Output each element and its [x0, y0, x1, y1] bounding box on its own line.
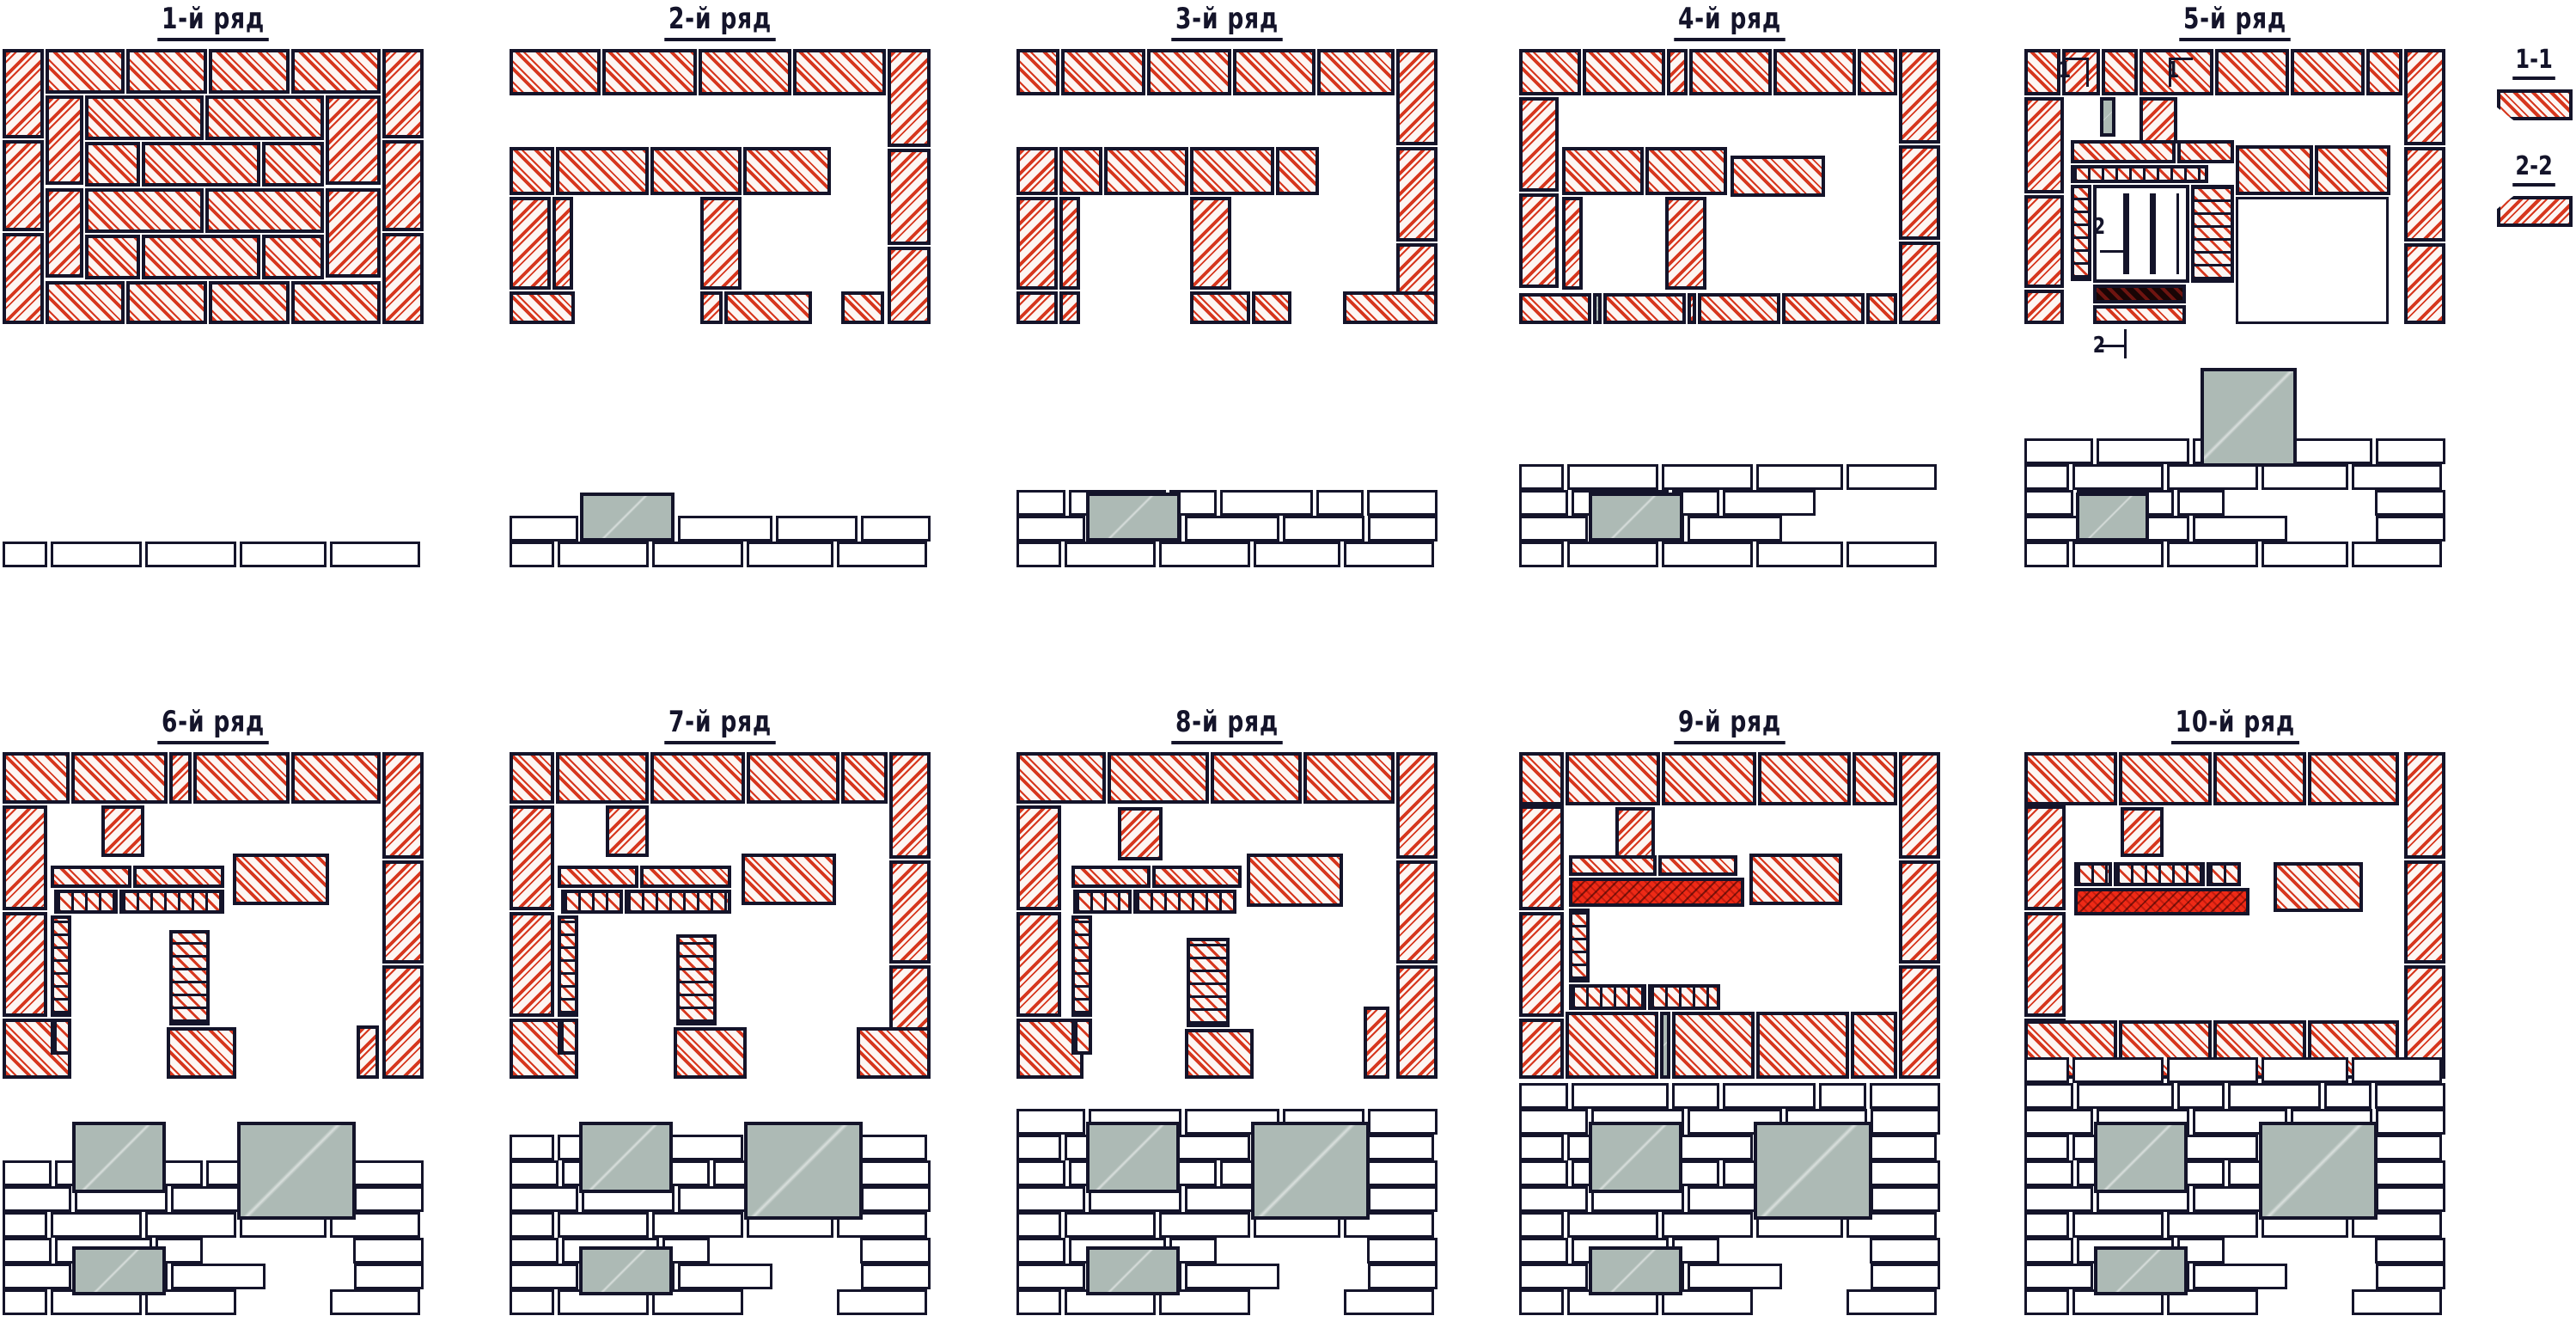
plan-brick — [640, 866, 731, 888]
elevation-brick — [1344, 542, 1434, 567]
plan-brick — [1152, 866, 1242, 888]
plan-brick — [1104, 147, 1188, 195]
plan-brick — [1569, 984, 1646, 1010]
elevation-brick — [2375, 1083, 2445, 1109]
elevation-brick — [2024, 1289, 2069, 1315]
elevation-brick — [861, 1186, 931, 1212]
plan-brick — [126, 281, 207, 324]
elevation-brick — [2193, 516, 2287, 542]
plan-brick — [1187, 938, 1230, 1027]
plan-brick — [2024, 49, 2060, 95]
elevation-brick — [652, 542, 743, 567]
elevation-brick — [2024, 1057, 2069, 1083]
plan-brick — [674, 1027, 747, 1079]
elevation-brick — [1572, 1083, 1669, 1109]
elevation-brick — [1065, 1212, 1156, 1238]
plan-brick — [1147, 49, 1231, 95]
stove-door — [579, 1122, 673, 1193]
elevation-brick — [2177, 490, 2225, 516]
plan-brick — [1569, 855, 1657, 876]
elevation-brick — [1847, 542, 1937, 567]
elevation-brick — [2376, 438, 2445, 464]
plan-brick — [71, 752, 168, 804]
section-marker-label: 1 — [2167, 58, 2179, 83]
plan-brick — [743, 147, 831, 195]
plan-brick — [1519, 912, 1564, 1017]
elevation-brick — [1185, 1264, 1279, 1289]
plan-brick — [2315, 145, 2390, 195]
plan-brick — [46, 95, 83, 185]
plan-brick — [650, 752, 745, 804]
plan-brick — [1276, 147, 1319, 195]
elevation-brick — [3, 542, 47, 567]
elevation-brick — [2024, 542, 2069, 567]
row-title-4: 4-й ряд — [1519, 2, 1940, 41]
plan-brick — [510, 805, 554, 910]
elevation-brick — [3, 1186, 71, 1212]
elevation-brick — [2024, 1135, 2069, 1160]
plan-brick — [1396, 860, 1438, 964]
elevation-brick — [2376, 516, 2445, 542]
section-marker-label: 2 — [2093, 214, 2105, 240]
elevation-brick — [558, 1212, 649, 1238]
elevation-brick — [837, 542, 927, 567]
stove-door — [1086, 493, 1181, 542]
plan-brick — [2366, 49, 2402, 95]
plan-brick — [556, 147, 649, 195]
plan-brick — [1016, 752, 1106, 804]
plan-brick — [1396, 752, 1438, 859]
plan-brick — [126, 49, 207, 94]
elevation-brick — [1870, 1160, 1940, 1186]
elevation-brick — [1756, 464, 1843, 490]
plan-brick — [2121, 807, 2164, 857]
plan-brick — [85, 142, 140, 187]
elevation-brick — [1283, 516, 1364, 542]
plan-brick — [1396, 49, 1438, 145]
elevation-brick — [1870, 1238, 1940, 1264]
plan-brick — [602, 49, 697, 95]
elevation-brick — [1254, 542, 1340, 567]
plan-brick — [1858, 49, 1897, 95]
plan-brick — [1593, 293, 1602, 324]
plan-brick — [700, 197, 742, 290]
row-title-10: 10-й ряд — [2024, 705, 2445, 744]
plan-brick — [1899, 49, 1940, 144]
elevation-brick — [1871, 1109, 1940, 1135]
plan-brick — [2236, 145, 2313, 195]
plan-brick — [382, 233, 424, 324]
plan-brick — [1519, 805, 1564, 910]
plan-brick — [1782, 293, 1865, 324]
plan-brick — [1899, 752, 1940, 859]
elevation-brick — [2376, 1264, 2445, 1289]
elevation-brick — [2193, 1264, 2287, 1289]
plan-brick — [1667, 49, 1688, 95]
plan-brick — [2071, 140, 2176, 163]
section-tick — [2100, 250, 2124, 253]
plan-brick — [51, 1019, 71, 1055]
plan-brick — [889, 860, 931, 964]
plan-brick — [510, 912, 554, 1017]
elevation-brick — [171, 1264, 266, 1289]
row-title-5: 5-й ряд — [2024, 2, 2445, 41]
stove-door — [1589, 493, 1683, 542]
plan-brick — [2024, 805, 2066, 910]
plan-brick — [742, 854, 836, 905]
elevation-brick — [2376, 1109, 2445, 1135]
elevation-brick — [1016, 542, 1061, 567]
plan-brick — [167, 1027, 236, 1079]
plan-brick — [169, 930, 210, 1025]
plan-brick — [841, 291, 884, 324]
plan-brick — [85, 235, 140, 279]
elevation-brick — [2072, 1057, 2164, 1083]
plan-brick — [1185, 1029, 1254, 1079]
plan-brick — [1108, 752, 1209, 804]
plan-brick — [119, 890, 224, 914]
elevation-brick — [353, 1160, 424, 1186]
stove-door — [2201, 368, 2297, 467]
plan-brick — [1899, 965, 1940, 1079]
elevation-brick — [1368, 1186, 1438, 1212]
elevation-brick — [1368, 1109, 1438, 1135]
plan-brick — [233, 854, 329, 905]
plan-brick — [1519, 752, 1564, 805]
elevation-brick — [1871, 1186, 1940, 1212]
elevation-brick — [1519, 542, 1564, 567]
elevation-brick — [1519, 516, 1588, 542]
plan-brick — [1899, 860, 1940, 964]
elevation-brick — [1016, 1212, 1061, 1238]
plan-brick — [558, 1019, 578, 1055]
elevation-brick — [1016, 1160, 1065, 1186]
section-marker-label: 1 — [2059, 58, 2071, 83]
row-title-1: 1-й ряд — [3, 2, 424, 41]
plan-brick — [54, 890, 118, 914]
plan-brick — [1899, 242, 1940, 324]
plan-brick — [747, 752, 839, 804]
plan-brick — [262, 235, 324, 279]
row-title-6: 6-й ряд — [3, 705, 424, 744]
plan-brick — [1016, 147, 1058, 195]
legend-brick-section-1-1 — [2497, 89, 2573, 120]
elevation-brick — [1016, 490, 1065, 516]
elevation-brick — [1065, 542, 1156, 567]
section-tick — [2124, 329, 2127, 358]
plan-brick — [1059, 197, 1080, 290]
plan-brick — [1071, 866, 1151, 888]
plan-brick — [1016, 805, 1061, 910]
plan-brick — [1662, 752, 1756, 805]
elevation-brick — [861, 516, 931, 542]
stove-door — [579, 1246, 673, 1295]
elevation-brick — [1519, 464, 1564, 490]
elevation-brick — [1016, 516, 1085, 542]
elevation-brick — [2352, 542, 2442, 567]
stove-door — [1754, 1122, 1872, 1220]
plan-brick — [2024, 97, 2064, 193]
stove-door — [72, 1122, 166, 1193]
plan-brick — [1660, 1012, 1670, 1079]
plan-brick — [1190, 197, 1231, 290]
elevation-brick — [1344, 1289, 1434, 1315]
elevation-brick — [2024, 464, 2069, 490]
plan-brick — [1071, 915, 1092, 1017]
elevation-brick — [837, 1289, 927, 1315]
plan-brick — [357, 1025, 379, 1079]
elevation-brick — [1519, 1186, 1588, 1212]
plan-brick — [2071, 165, 2208, 183]
plan-brick — [857, 1027, 931, 1079]
plan-brick — [561, 890, 623, 914]
plan-brick — [1317, 49, 1395, 95]
plan-brick — [2093, 305, 2186, 324]
elevation-brick — [861, 1264, 931, 1289]
elevation-brick — [1159, 542, 1250, 567]
elevation-brick — [1662, 464, 1753, 490]
elevation-brick — [1819, 1083, 1866, 1109]
elevation-brick — [510, 1186, 578, 1212]
elevation-brick — [2072, 464, 2164, 490]
legend-label-text: 1-1 — [2512, 45, 2555, 80]
elevation-brick — [1185, 516, 1279, 542]
elevation-brick — [353, 1238, 424, 1264]
elevation-brick — [2072, 542, 2164, 567]
legend-label-2-2: 2-2 — [2495, 151, 2573, 187]
plan-brick — [1016, 291, 1058, 324]
elevation-brick — [1672, 1083, 1719, 1109]
plan-brick — [3, 49, 44, 138]
elevation-brick — [510, 1160, 559, 1186]
plan-brick — [85, 188, 204, 233]
elevation-brick — [2072, 1212, 2164, 1238]
plan-brick — [1343, 291, 1438, 324]
plan-brick — [1658, 855, 1737, 876]
plan-brick — [1519, 1019, 1564, 1079]
elevation-brick — [3, 1289, 47, 1315]
plan-brick — [169, 752, 192, 804]
plan-brick — [2024, 752, 2117, 805]
elevation-brick — [2167, 542, 2258, 567]
plan-brick — [1073, 890, 1132, 914]
elevation-brick — [1662, 1212, 1753, 1238]
elevation-brick — [2024, 490, 2073, 516]
row-title-text: 2-й ряд — [664, 2, 776, 41]
elevation-brick — [2376, 1186, 2445, 1212]
elevation-brick — [1688, 516, 1782, 542]
plan-brick — [793, 49, 886, 95]
plan-brick — [2274, 862, 2363, 912]
elevation-brick — [510, 542, 554, 567]
elevation-brick — [2352, 1289, 2442, 1315]
plan-brick — [1566, 1012, 1658, 1079]
elevation-brick — [354, 1264, 424, 1289]
elevation-brick — [2167, 1057, 2258, 1083]
plan-brick — [1756, 1012, 1849, 1079]
elevation-brick — [2352, 1057, 2442, 1083]
elevation-brick — [330, 1289, 420, 1315]
plan-brick — [1566, 752, 1660, 805]
elevation-brick — [1756, 542, 1843, 567]
stove-door — [1251, 1122, 1370, 1220]
elevation-brick — [2291, 438, 2372, 464]
plan-brick — [1562, 147, 1644, 195]
plan-brick — [291, 49, 381, 94]
elevation-brick — [510, 516, 578, 542]
plan-brick — [841, 752, 888, 804]
elevation-brick — [1316, 490, 1364, 516]
stove-door — [2094, 1122, 2188, 1193]
plan-brick — [2024, 195, 2064, 288]
elevation-brick — [1016, 1109, 1085, 1135]
plan-brick — [1731, 156, 1825, 197]
plan-brick — [1133, 890, 1236, 914]
plan-brick — [2404, 243, 2445, 324]
plan-brick — [2404, 147, 2445, 242]
row-title-text: 5-й ряд — [2179, 2, 2291, 41]
elevation-brick — [678, 516, 772, 542]
plan-brick — [2291, 49, 2365, 95]
elevation-brick — [2375, 1238, 2445, 1264]
elevation-brick — [330, 542, 420, 567]
plan-brick — [3, 912, 47, 1017]
elevation-brick — [2024, 1264, 2093, 1289]
plan-brick — [1773, 49, 1856, 95]
elevation-brick — [1519, 1160, 1568, 1186]
plan-brick — [291, 281, 381, 324]
elevation-brick — [1519, 1264, 1588, 1289]
plan-brick — [85, 95, 204, 140]
elevation-brick — [2262, 1057, 2348, 1083]
elevation-brick — [1367, 1160, 1438, 1186]
plan-brick — [1303, 752, 1395, 804]
plan-brick — [2404, 860, 2445, 964]
row-title-text: 6-й ряд — [157, 705, 269, 744]
plan-brick — [209, 49, 290, 94]
stove-door — [72, 1246, 166, 1295]
stove-door — [2076, 493, 2149, 542]
plan-brick — [1645, 147, 1727, 195]
elevation-brick — [1220, 490, 1313, 516]
elevation-brick — [51, 542, 142, 567]
elevation-brick — [1567, 1212, 1658, 1238]
plan-brick — [1615, 807, 1655, 859]
plan-brick — [510, 291, 575, 324]
plan-brick — [1190, 291, 1250, 324]
plan-brick — [205, 188, 324, 233]
plan-brick — [556, 752, 649, 804]
elevation-brick — [51, 1212, 142, 1238]
stove-door — [2094, 1246, 2188, 1295]
plan-brick — [2093, 285, 2186, 303]
elevation-brick — [2024, 438, 2093, 464]
plan-brick — [2024, 290, 2064, 324]
elevation-brick — [1662, 542, 1753, 567]
elevation-brick — [510, 1135, 554, 1160]
row-title-text: 10-й ряд — [2171, 705, 2299, 744]
elevation-brick — [2024, 1212, 2069, 1238]
plan-brick — [1233, 49, 1315, 95]
plan-brick — [2404, 752, 2445, 859]
row-title-text: 4-й ряд — [1674, 2, 1785, 41]
plan-brick — [51, 866, 131, 888]
row-title-text: 7-й ряд — [664, 705, 776, 744]
plan-brick — [1396, 965, 1438, 1079]
elevation-brick — [510, 1264, 578, 1289]
elevation-brick — [1567, 542, 1658, 567]
elevation-brick — [558, 542, 649, 567]
plan-brick — [142, 235, 260, 279]
plan-brick — [700, 291, 723, 324]
masonry-course-diagram: 1-й ряд2-й ряд3-й ряд4-й ряд5-й ряд11226… — [0, 0, 2576, 1322]
elevation-brick — [1519, 1109, 1588, 1135]
plan-brick — [558, 866, 638, 888]
elevation-brick — [2024, 1238, 2073, 1264]
plan-brick — [510, 752, 554, 804]
plan-brick — [1603, 293, 1686, 324]
elevation-brick — [1567, 464, 1658, 490]
elevation-brick — [1688, 1264, 1782, 1289]
elevation-brick — [860, 1160, 931, 1186]
plan-brick — [510, 49, 601, 95]
elevation-brick — [747, 542, 833, 567]
elevation-brick — [2167, 464, 2258, 490]
legend-label-1-1: 1-1 — [2495, 45, 2573, 80]
elevation-brick — [2167, 1212, 2258, 1238]
elevation-brick — [2024, 1083, 2073, 1109]
elevation-brick — [1016, 1238, 1065, 1264]
plan-brick — [2191, 185, 2234, 283]
section-tick — [2086, 58, 2089, 87]
plan-brick — [558, 915, 578, 1017]
plan-brick — [193, 752, 290, 804]
plan-brick — [1059, 291, 1080, 324]
plan-brick — [46, 188, 83, 278]
plan-brick — [2074, 888, 2249, 915]
elevation-brick — [1870, 1083, 1940, 1109]
plan-brick — [1396, 147, 1438, 242]
elevation-brick — [652, 1212, 743, 1238]
elevation-brick — [354, 1186, 424, 1212]
plan-brick — [142, 142, 260, 187]
plan-brick — [650, 147, 742, 195]
plan-brick — [1211, 752, 1302, 804]
plan-brick — [2404, 49, 2445, 145]
plan-brick — [1071, 1019, 1092, 1055]
plan-brick — [625, 890, 731, 914]
elevation-brick — [145, 542, 236, 567]
elevation-brick — [240, 542, 327, 567]
plan-brick — [1519, 193, 1559, 288]
plan-brick — [1648, 984, 1720, 1010]
plan-brick — [1061, 49, 1145, 95]
row-title-text: 3-й ряд — [1171, 2, 1283, 41]
plan-brick — [2213, 752, 2306, 805]
stove-door — [2259, 1122, 2378, 1220]
plan-brick — [1562, 197, 1583, 290]
plan-brick — [326, 95, 381, 185]
plan-brick — [1519, 97, 1559, 192]
elevation-brick — [1016, 1135, 1061, 1160]
plan-brick — [1252, 291, 1291, 324]
plan-brick — [510, 197, 551, 290]
plan-brick — [1016, 912, 1061, 1017]
plan-brick — [2102, 49, 2138, 95]
elevation-brick — [2262, 542, 2348, 567]
stove-door — [1086, 1246, 1180, 1295]
section-marker-label: 2 — [2093, 333, 2105, 358]
